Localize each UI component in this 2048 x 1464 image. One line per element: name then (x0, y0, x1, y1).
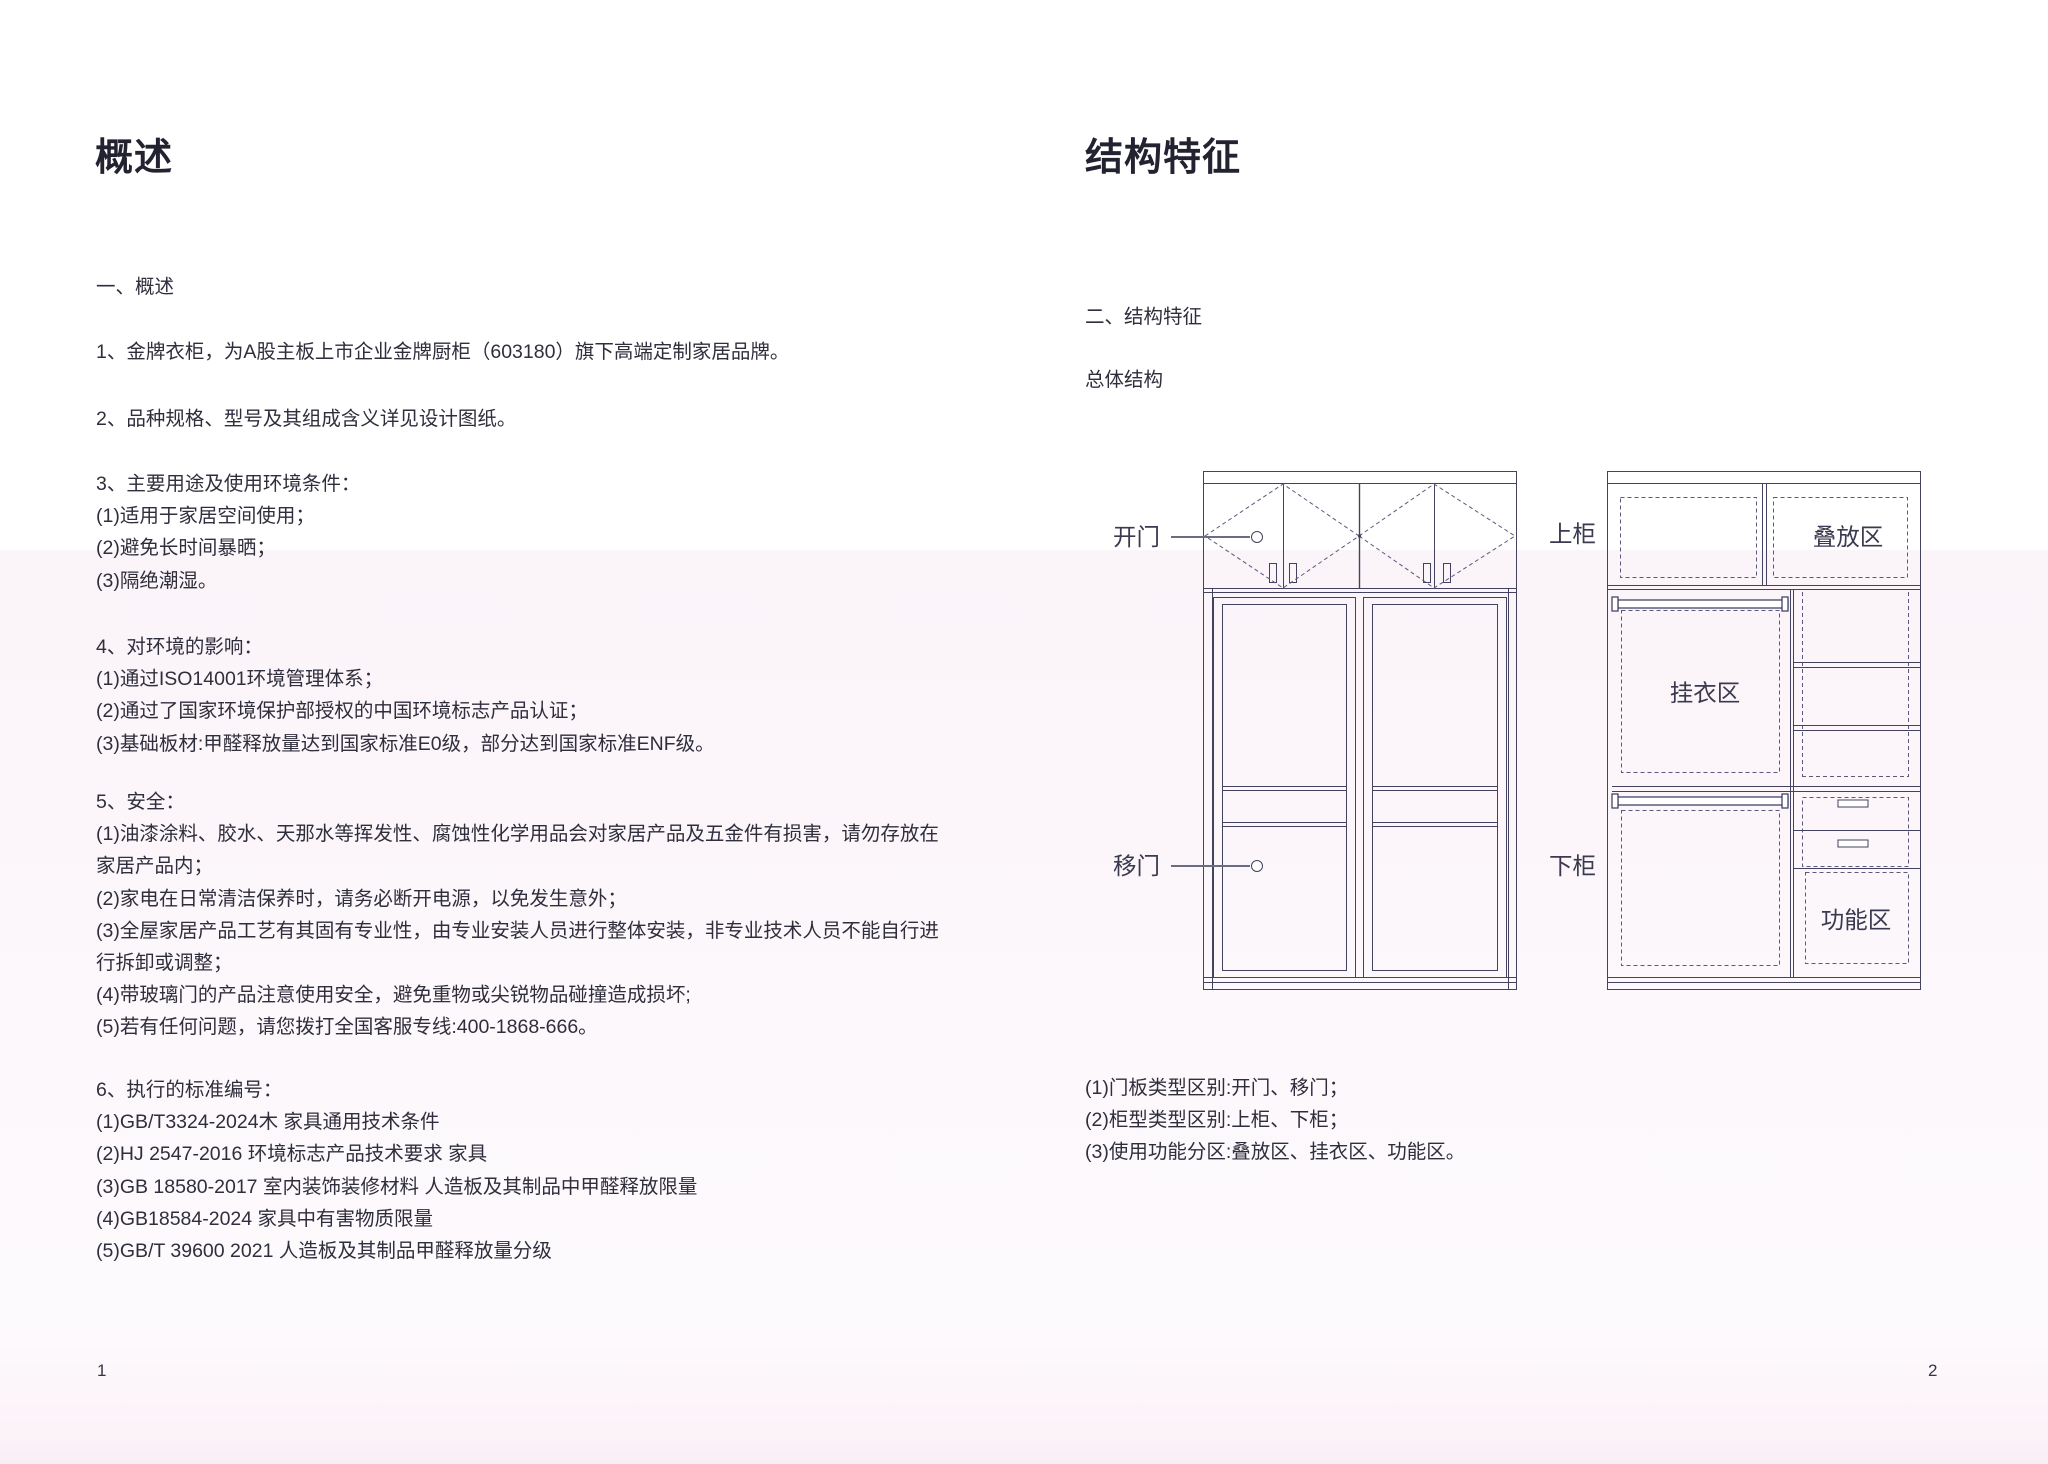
body-line: (1)通过ISO14001环境管理体系； (96, 663, 715, 695)
label-upper-cabinet: 上柜 (1549, 519, 1596, 549)
body-line: 4、对环境的影响： (96, 631, 715, 663)
page-title-structure: 结构特征 (1085, 134, 1241, 182)
swing-center-dot (1358, 534, 1361, 537)
door-handle (1424, 564, 1431, 583)
body-line: (2)HJ 2547-2016 环境标志产品技术要求 家具 (96, 1138, 697, 1170)
section-heading-block: 一、概述 (96, 271, 174, 303)
rod-bracket (1612, 794, 1618, 808)
leader-line-open-door (1171, 536, 1250, 538)
body-line: (4)带玻璃门的产品注意使用安全，避免重物或尖锐物品碰撞造成损坏; (96, 979, 939, 1011)
body-line: (2)避免长时间暴晒； (96, 532, 360, 564)
body-line: 2、品种规格、型号及其组成含义详见设计图纸。 (96, 403, 516, 435)
drawer-handle (1838, 800, 1868, 807)
body-line: (3)GB 18580-2017 室内装饰装修材料 人造板及其制品中甲醛释放限量 (96, 1171, 697, 1203)
rod-bracket (1782, 597, 1788, 611)
body-line: 6、执行的标准编号： (96, 1074, 697, 1106)
paragraph-block-1: 1、金牌衣柜，为A股主板上市企业金牌厨柜（603180）旗下高端定制家居品牌。 (96, 336, 789, 368)
page-number-right: 2 (1928, 1361, 1937, 1381)
zone-dashed-boundaries (1621, 498, 1910, 966)
door-handle (1270, 564, 1277, 583)
section-heading: 二、结构特征 (1085, 301, 1202, 333)
body-line: 1、金牌衣柜，为A股主板上市企业金牌厨柜（603180）旗下高端定制家居品牌。 (96, 336, 789, 368)
wardrobe-door-diagram (1203, 471, 1517, 990)
paragraph-block-4: 4、对环境的影响： (1)通过ISO14001环境管理体系； (2)通过了国家环… (96, 631, 715, 760)
body-line: (2)通过了国家环境保护部授权的中国环境标志产品认证； (96, 695, 715, 727)
body-line: (1)GB/T3324-2024木 家具通用技术条件 (96, 1106, 697, 1138)
paragraph-block-2: 2、品种规格、型号及其组成含义详见设计图纸。 (96, 403, 516, 435)
body-line: (1)油漆涂料、胶水、天那水等挥发性、腐蚀性化学用品会对家居产品及五金件有损害，… (96, 818, 939, 850)
body-line: (2)家电在日常清洁保养时，请务必断开电源，以免发生意外； (96, 883, 939, 915)
paragraph-block-6: 6、执行的标准编号： (1)GB/T3324-2024木 家具通用技术条件 (2… (96, 1074, 697, 1267)
subheading: 总体结构 (1085, 364, 1163, 396)
caption-block: (1)门板类型区别:开门、移门； (2)柜型类型区别:上柜、下柜； (3)使用功… (1085, 1072, 1465, 1169)
body-line: 家居产品内； (96, 850, 939, 882)
label-stacking-zone: 叠放区 (1810, 522, 1886, 552)
paragraph-block-5: 5、安全： (1)油漆涂料、胶水、天那水等挥发性、腐蚀性化学用品会对家居产品及五… (96, 786, 939, 1044)
body-line: 行拆卸或调整； (96, 947, 939, 979)
caption-line: (2)柜型类型区别:上柜、下柜； (1085, 1104, 1465, 1136)
caption-line: (1)门板类型区别:开门、移门； (1085, 1072, 1465, 1104)
shelves-and-drawers (1612, 663, 1920, 869)
leader-line-sliding-door (1171, 865, 1250, 867)
body-line: 5、安全： (96, 786, 939, 818)
body-line: (3)全屋家居产品工艺有其固有专业性，由专业安装人员进行整体安装，非专业技术人员… (96, 915, 939, 947)
label-open-door: 开门 (1113, 522, 1160, 552)
body-line: (1)适用于家居空间使用； (96, 500, 360, 532)
label-lower-cabinet: 下柜 (1549, 851, 1596, 881)
lower-sliding-doors (1204, 588, 1516, 989)
hanging-rod (1618, 600, 1788, 608)
page-title-overview: 概述 (95, 134, 173, 182)
rod-bracket (1782, 794, 1788, 808)
subheading-block: 总体结构 (1085, 364, 1163, 396)
body-line: (3)隔绝潮湿。 (96, 565, 360, 597)
caption-line: (3)使用功能分区:叠放区、挂衣区、功能区。 (1085, 1136, 1465, 1168)
label-hanging-zone: 挂衣区 (1667, 678, 1743, 708)
rod-bracket (1612, 597, 1618, 611)
label-function-zone: 功能区 (1818, 905, 1894, 935)
label-sliding-door: 移门 (1113, 851, 1160, 881)
body-line: (5)GB/T 39600 2021 人造板及其制品甲醛释放量分级 (96, 1235, 697, 1267)
body-line: (4)GB18584-2024 家具中有害物质限量 (96, 1203, 697, 1235)
section-heading-block-2: 二、结构特征 (1085, 301, 1202, 333)
paragraph-block-3: 3、主要用途及使用环境条件： (1)适用于家居空间使用； (2)避免长时间暴晒；… (96, 468, 360, 597)
drawer-handle (1838, 840, 1868, 847)
open-door-marker-circle (1252, 532, 1263, 543)
body-line: (5)若有任何问题，请您拨打全国客服专线:400-1868-666。 (96, 1011, 939, 1043)
hanging-rod (1618, 797, 1788, 805)
section-heading: 一、概述 (96, 271, 174, 303)
body-line: 3、主要用途及使用环境条件： (96, 468, 360, 500)
body-line: (3)基础板材:甲醛释放量达到国家标准E0级，部分达到国家标准ENF级。 (96, 728, 715, 760)
page-number-left: 1 (97, 1361, 106, 1381)
sliding-door-marker-circle (1252, 861, 1263, 872)
